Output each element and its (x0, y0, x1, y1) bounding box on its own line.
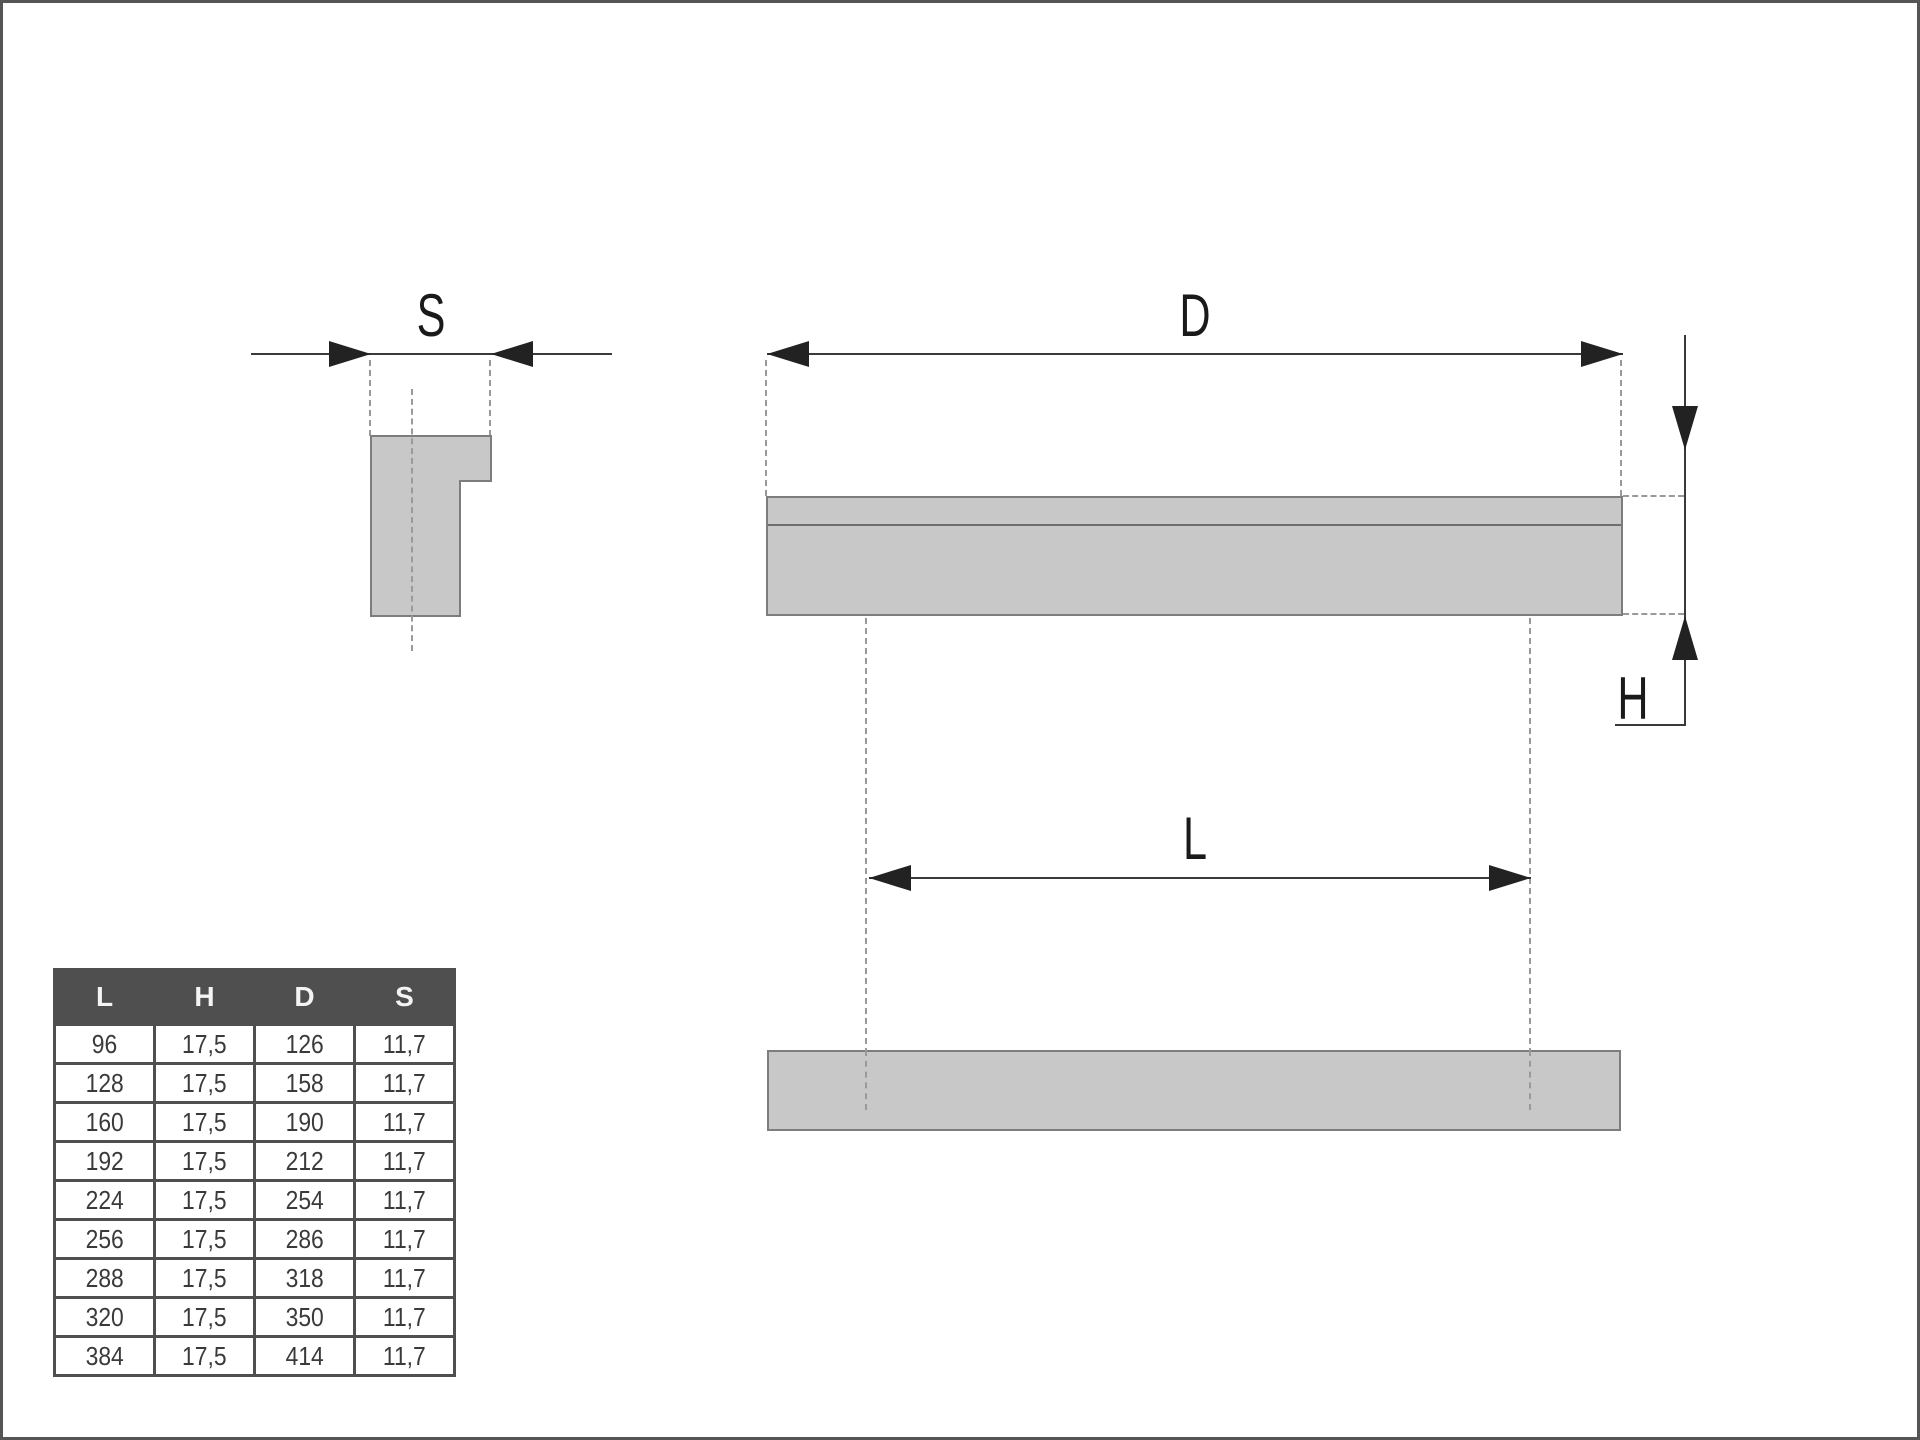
technical-drawing-canvas: S D H L LHDS 9617,512611,712817,515811,7… (0, 0, 1920, 1440)
table-cell-value: 254 (285, 1185, 323, 1216)
table-cell-value: 17,5 (182, 1302, 227, 1333)
table-cell: 414 (255, 1337, 355, 1376)
dimension-label-l: L (1152, 809, 1238, 869)
table-cell: 17,5 (155, 1025, 255, 1064)
table-cell: 350 (255, 1298, 355, 1337)
table-cell: 384 (55, 1337, 155, 1376)
d-arrow-left-icon (767, 341, 809, 367)
table-cell-value: 11,7 (383, 1029, 426, 1060)
table-cell: 286 (255, 1220, 355, 1259)
table-cell: 11,7 (355, 1181, 455, 1220)
table-header-cell: S (355, 970, 455, 1025)
s-arrow-right-icon (491, 341, 533, 367)
h-arrow-up-icon (1672, 616, 1698, 660)
table-cell: 160 (55, 1103, 155, 1142)
table-cell: 128 (55, 1064, 155, 1103)
table-cell: 11,7 (355, 1064, 455, 1103)
table-cell-value: 17,5 (182, 1185, 227, 1216)
table-body: 9617,512611,712817,515811,716017,519011,… (55, 1025, 455, 1376)
table-cell-value: 350 (285, 1302, 323, 1333)
table-row: 16017,519011,7 (55, 1103, 455, 1142)
l-extension-overlap-right (1529, 1050, 1531, 1110)
table-row: 38417,541411,7 (55, 1337, 455, 1376)
table-header-cell: L (55, 970, 155, 1025)
table-cell: 17,5 (155, 1181, 255, 1220)
table-cell: 320 (55, 1298, 155, 1337)
table-cell-value: 17,5 (182, 1107, 227, 1138)
table-cell: 11,7 (355, 1220, 455, 1259)
h-arrow-down-icon (1672, 406, 1698, 450)
table-cell-value: 17,5 (182, 1263, 227, 1294)
table-row: 12817,515811,7 (55, 1064, 455, 1103)
s-extension-line-right (489, 360, 491, 436)
table-cell-value: 126 (285, 1029, 323, 1060)
table-cell: 158 (255, 1064, 355, 1103)
l-arrow-left-icon (869, 865, 911, 891)
handle-side-view (766, 496, 1623, 616)
table-cell-value: 414 (285, 1341, 323, 1372)
table-cell-value: 11,7 (383, 1068, 426, 1099)
table-cell: 17,5 (155, 1103, 255, 1142)
table-header-cell: H (155, 970, 255, 1025)
table-cell-value: 11,7 (383, 1341, 426, 1372)
table-cell-value: 320 (85, 1302, 123, 1333)
table-cell: 11,7 (355, 1259, 455, 1298)
dimension-label-h: H (1609, 669, 1657, 729)
table-cell: 17,5 (155, 1259, 255, 1298)
table-cell-value: 17,5 (182, 1341, 227, 1372)
h-extension-line-bottom (1623, 613, 1684, 615)
table-cell-value: 192 (85, 1146, 123, 1177)
table-row: 25617,528611,7 (55, 1220, 455, 1259)
d-dimension-line (767, 353, 1623, 355)
table-cell-value: 288 (85, 1263, 123, 1294)
table-header-row: LHDS (55, 970, 455, 1025)
table-cell: 318 (255, 1259, 355, 1298)
table-cell-value: 212 (285, 1146, 323, 1177)
table-cell-value: 256 (85, 1224, 123, 1255)
table-cell-value: 11,7 (383, 1302, 426, 1333)
table-cell: 192 (55, 1142, 155, 1181)
dimension-label-s: S (388, 286, 474, 346)
table-cell: 224 (55, 1181, 155, 1220)
table-cell-value: 17,5 (182, 1068, 227, 1099)
handle-side-view-edge-line (768, 524, 1621, 526)
l-extension-line-left (865, 618, 867, 1114)
section-centerline (411, 389, 413, 651)
table-cell-value: 160 (85, 1107, 123, 1138)
handle-bottom-view (767, 1050, 1621, 1131)
table-cell-value: 96 (92, 1029, 117, 1060)
dimension-table: LHDS 9617,512611,712817,515811,716017,51… (53, 968, 456, 1377)
table-cell-value: 224 (85, 1185, 123, 1216)
table-header-cell: D (255, 970, 355, 1025)
table-cell-value: 128 (85, 1068, 123, 1099)
table-cell: 17,5 (155, 1337, 255, 1376)
table-cell: 212 (255, 1142, 355, 1181)
table-cell-value: 17,5 (182, 1224, 227, 1255)
section-profile-shape (370, 435, 492, 617)
l-extension-overlap-left (865, 1050, 867, 1110)
s-arrow-left-icon (329, 341, 371, 367)
table-cell-value: 11,7 (383, 1263, 426, 1294)
dimension-label-d: D (1152, 286, 1238, 346)
l-dimension-line (869, 877, 1531, 879)
h-extension-line-top (1623, 495, 1684, 497)
s-extension-line-left (369, 360, 371, 436)
d-extension-line-left (765, 360, 767, 496)
table-cell: 288 (55, 1259, 155, 1298)
table-cell: 256 (55, 1220, 155, 1259)
table-cell: 190 (255, 1103, 355, 1142)
table-cell-value: 158 (285, 1068, 323, 1099)
table-cell-value: 190 (285, 1107, 323, 1138)
table-row: 28817,531811,7 (55, 1259, 455, 1298)
h-label-shelf-line (1615, 724, 1685, 726)
table-cell-value: 11,7 (383, 1146, 426, 1177)
table-cell-value: 11,7 (383, 1224, 426, 1255)
table-cell: 11,7 (355, 1025, 455, 1064)
table-row: 32017,535011,7 (55, 1298, 455, 1337)
table-cell: 17,5 (155, 1142, 255, 1181)
table-cell: 11,7 (355, 1298, 455, 1337)
s-dimension-line (251, 353, 612, 355)
table-cell: 17,5 (155, 1298, 255, 1337)
table-cell: 11,7 (355, 1142, 455, 1181)
d-arrow-right-icon (1581, 341, 1623, 367)
table-cell: 96 (55, 1025, 155, 1064)
table-cell-value: 17,5 (182, 1146, 227, 1177)
table-cell-value: 11,7 (383, 1185, 426, 1216)
table-cell-value: 318 (285, 1263, 323, 1294)
table-cell: 126 (255, 1025, 355, 1064)
table-cell-value: 286 (285, 1224, 323, 1255)
table-cell: 11,7 (355, 1337, 455, 1376)
l-arrow-right-icon (1489, 865, 1531, 891)
d-extension-line-right (1620, 360, 1622, 496)
table-cell: 17,5 (155, 1064, 255, 1103)
h-dimension-line (1684, 335, 1686, 726)
table-cell: 254 (255, 1181, 355, 1220)
table-row: 22417,525411,7 (55, 1181, 455, 1220)
table-cell: 11,7 (355, 1103, 455, 1142)
table-cell-value: 11,7 (383, 1107, 426, 1138)
table-cell-value: 17,5 (182, 1029, 227, 1060)
table-cell: 17,5 (155, 1220, 255, 1259)
table-row: 19217,521211,7 (55, 1142, 455, 1181)
table-row: 9617,512611,7 (55, 1025, 455, 1064)
table-head: LHDS (55, 970, 455, 1025)
table-cell-value: 384 (85, 1341, 123, 1372)
